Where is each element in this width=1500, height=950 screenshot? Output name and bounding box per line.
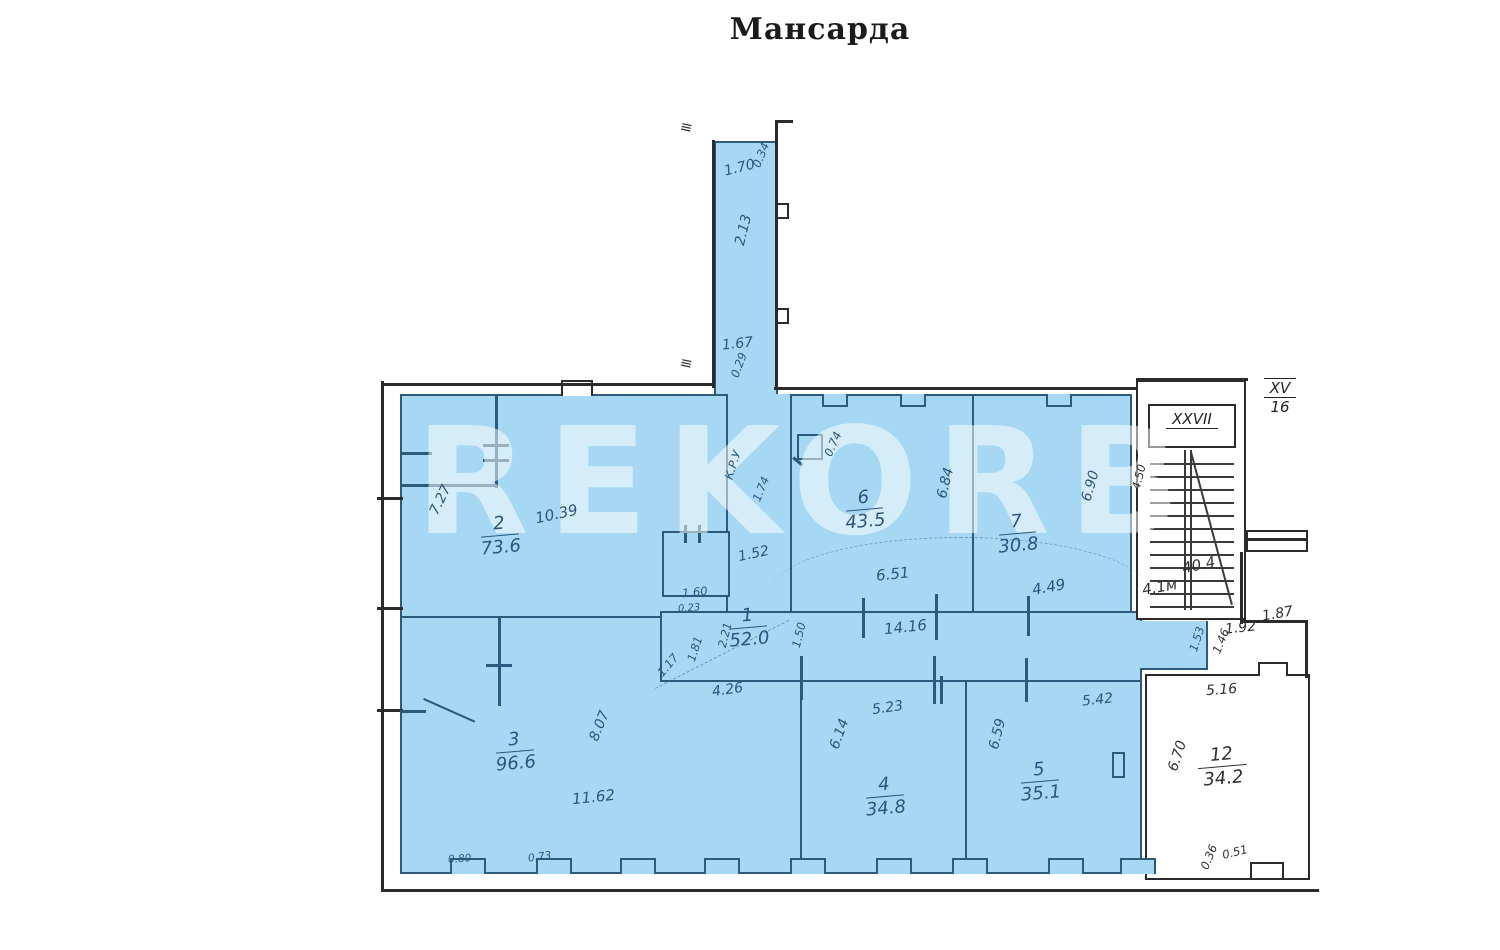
- radiator: [1112, 752, 1125, 778]
- window-notch: [1258, 662, 1288, 676]
- wall-line: [381, 381, 384, 892]
- room-3-number: 3: [495, 729, 534, 753]
- section-mark: ≡: [678, 117, 694, 137]
- wall-line: [1136, 378, 1248, 381]
- wall-line: [774, 387, 1138, 390]
- room-5-number: 5: [1020, 759, 1059, 783]
- window-notch: [1048, 858, 1084, 874]
- window-notch: [876, 858, 912, 874]
- room-4-number: 4: [865, 774, 904, 798]
- wall-line: [1246, 538, 1308, 541]
- dim-room6-width: 6.51: [875, 563, 910, 584]
- wall-line: [775, 120, 778, 390]
- dim-corridor-160: 1.60: [681, 584, 708, 601]
- wall-notch: [777, 203, 789, 219]
- window-notch: [1250, 862, 1284, 878]
- window-notch: [620, 858, 656, 874]
- wall-line: [775, 120, 793, 123]
- room-5-label: 5 35.1: [993, 756, 1086, 808]
- room-4-label: 4 34.8: [838, 771, 931, 823]
- floor-plan: Мансарда: [0, 0, 1500, 950]
- wall-tick: [377, 607, 403, 610]
- dim-room5-width: 5.42: [1081, 690, 1114, 709]
- dimension-tick: [935, 594, 938, 640]
- dimension-tick: [1025, 658, 1028, 700]
- wall-line: [1240, 552, 1243, 624]
- partition-line: [400, 710, 426, 713]
- wall-line: [712, 140, 715, 388]
- page-title: Мансарда: [730, 12, 911, 47]
- room-6-number: 6: [844, 487, 883, 511]
- wall-notch: [777, 308, 789, 324]
- dim-ext-146: 1.46: [1210, 627, 1233, 656]
- exterior-flight-bottom: 16: [1256, 398, 1304, 416]
- room-2-label: 2 73.6: [453, 510, 546, 562]
- exterior-flight-top: XV: [1264, 378, 1297, 398]
- room-7-label: 7 30.8: [973, 508, 1062, 559]
- stair-entry-landing: [1246, 530, 1308, 552]
- window-notch: [952, 858, 988, 874]
- dimension-tick: [800, 656, 803, 700]
- dimension-tick: [933, 656, 936, 704]
- room-12-number: 12: [1196, 744, 1247, 769]
- wall-line: [1305, 622, 1308, 678]
- flue-tick: [486, 664, 512, 667]
- window-notch: [1120, 858, 1156, 874]
- wall-line: [381, 383, 715, 386]
- window-notch: [790, 858, 826, 874]
- stair-flight-label: XXVII: [1150, 410, 1234, 429]
- dimension-tick: [1027, 596, 1030, 636]
- room-3-label: 3 96.6: [468, 726, 561, 778]
- dim-corridor-023: 0.23: [678, 602, 701, 615]
- door-jamb: [940, 676, 943, 704]
- room-6-label: 6 43.5: [820, 484, 909, 535]
- room-12-label: 12 34.2: [1178, 741, 1267, 792]
- wall-tick: [377, 497, 403, 500]
- section-mark: ≡: [678, 353, 694, 373]
- room-7-number: 7: [997, 511, 1036, 535]
- partition-line: [498, 616, 501, 706]
- room-2-number: 2: [480, 513, 519, 537]
- window-notch: [704, 858, 740, 874]
- wall-line: [381, 889, 1319, 892]
- dimension-tick: [862, 598, 865, 638]
- stair-flight-number: XXVII: [1166, 410, 1218, 429]
- dim-ext-516: 5.16: [1205, 681, 1237, 699]
- exterior-flight-label: XV 16: [1256, 378, 1304, 416]
- dim-window-080: 0.80: [448, 852, 472, 866]
